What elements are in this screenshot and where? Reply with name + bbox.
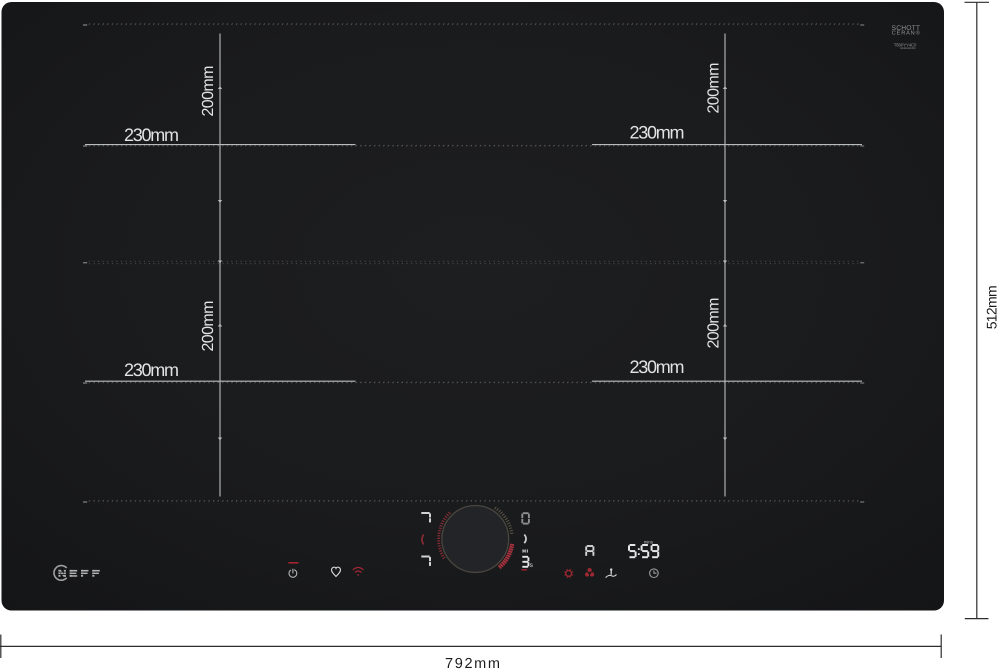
- svg-text:MADE IN GERMANY: MADE IN GERMANY: [900, 47, 916, 50]
- svg-text:792mm: 792mm: [445, 656, 500, 672]
- svg-text:200mm: 200mm: [200, 301, 217, 352]
- svg-text:230mm: 230mm: [124, 125, 179, 145]
- svg-text:230mm: 230mm: [630, 123, 685, 143]
- svg-text:mins: mins: [644, 540, 654, 545]
- svg-text:230mm: 230mm: [124, 360, 179, 380]
- svg-text:200mm: 200mm: [706, 298, 723, 349]
- svg-text:200mm: 200mm: [706, 63, 723, 114]
- svg-text:512mm: 512mm: [984, 285, 1000, 329]
- svg-text:200mm: 200mm: [200, 65, 217, 116]
- svg-text:230mm: 230mm: [630, 357, 685, 377]
- svg-text:CERAN®: CERAN®: [892, 31, 921, 37]
